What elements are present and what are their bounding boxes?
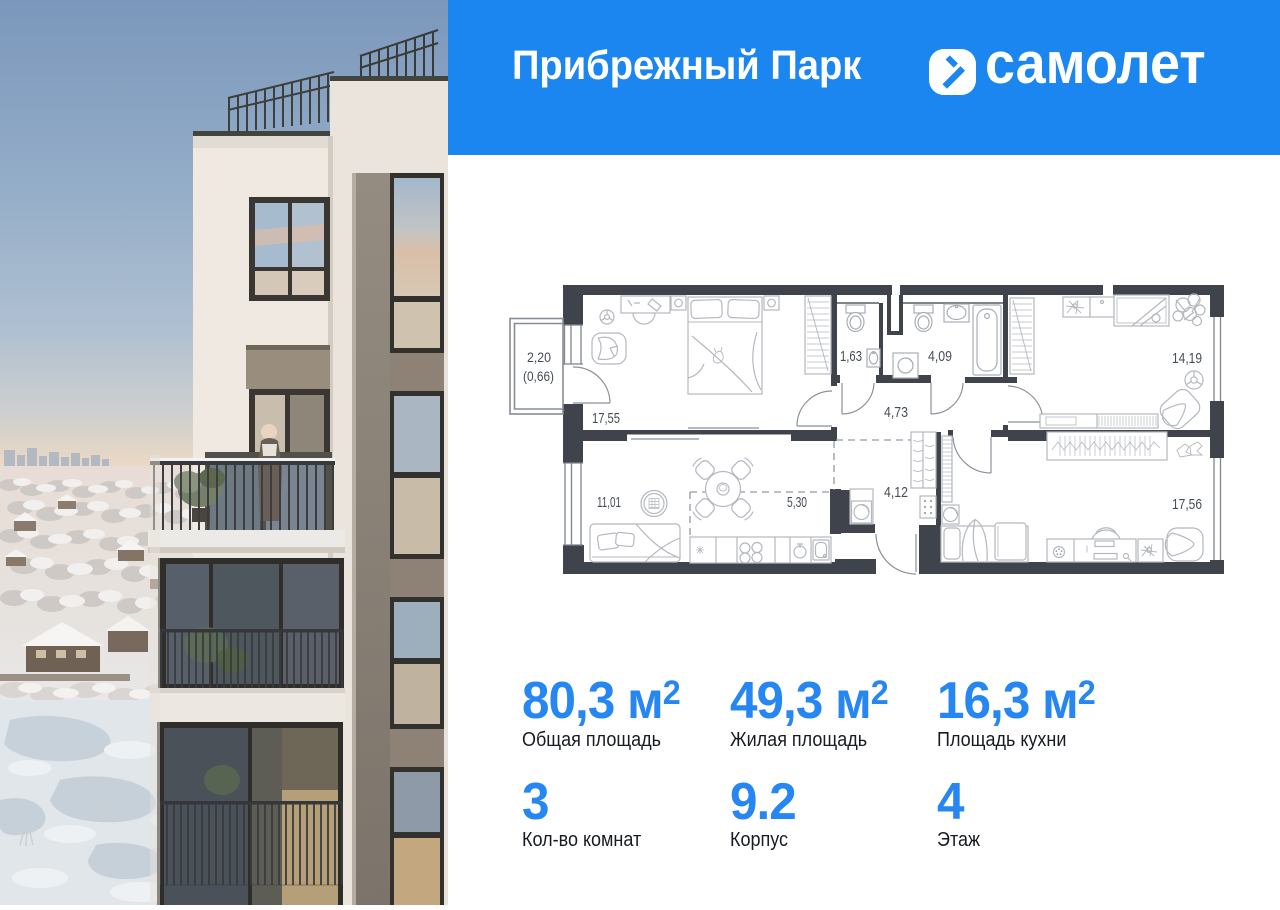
svg-text:2,20: 2,20 bbox=[527, 349, 551, 365]
svg-text:17,55: 17,55 bbox=[592, 410, 620, 427]
svg-text:14,19: 14,19 bbox=[1172, 350, 1202, 367]
svg-text:11,01: 11,01 bbox=[597, 494, 621, 511]
svg-text:(0,66): (0,66) bbox=[523, 368, 554, 384]
svg-text:5,30: 5,30 bbox=[787, 494, 807, 511]
svg-text:17,56: 17,56 bbox=[1172, 496, 1202, 513]
svg-text:4,73: 4,73 bbox=[884, 404, 908, 421]
svg-text:1,63: 1,63 bbox=[840, 348, 862, 365]
svg-text:4,12: 4,12 bbox=[884, 484, 908, 501]
svg-text:4,09: 4,09 bbox=[928, 348, 952, 365]
